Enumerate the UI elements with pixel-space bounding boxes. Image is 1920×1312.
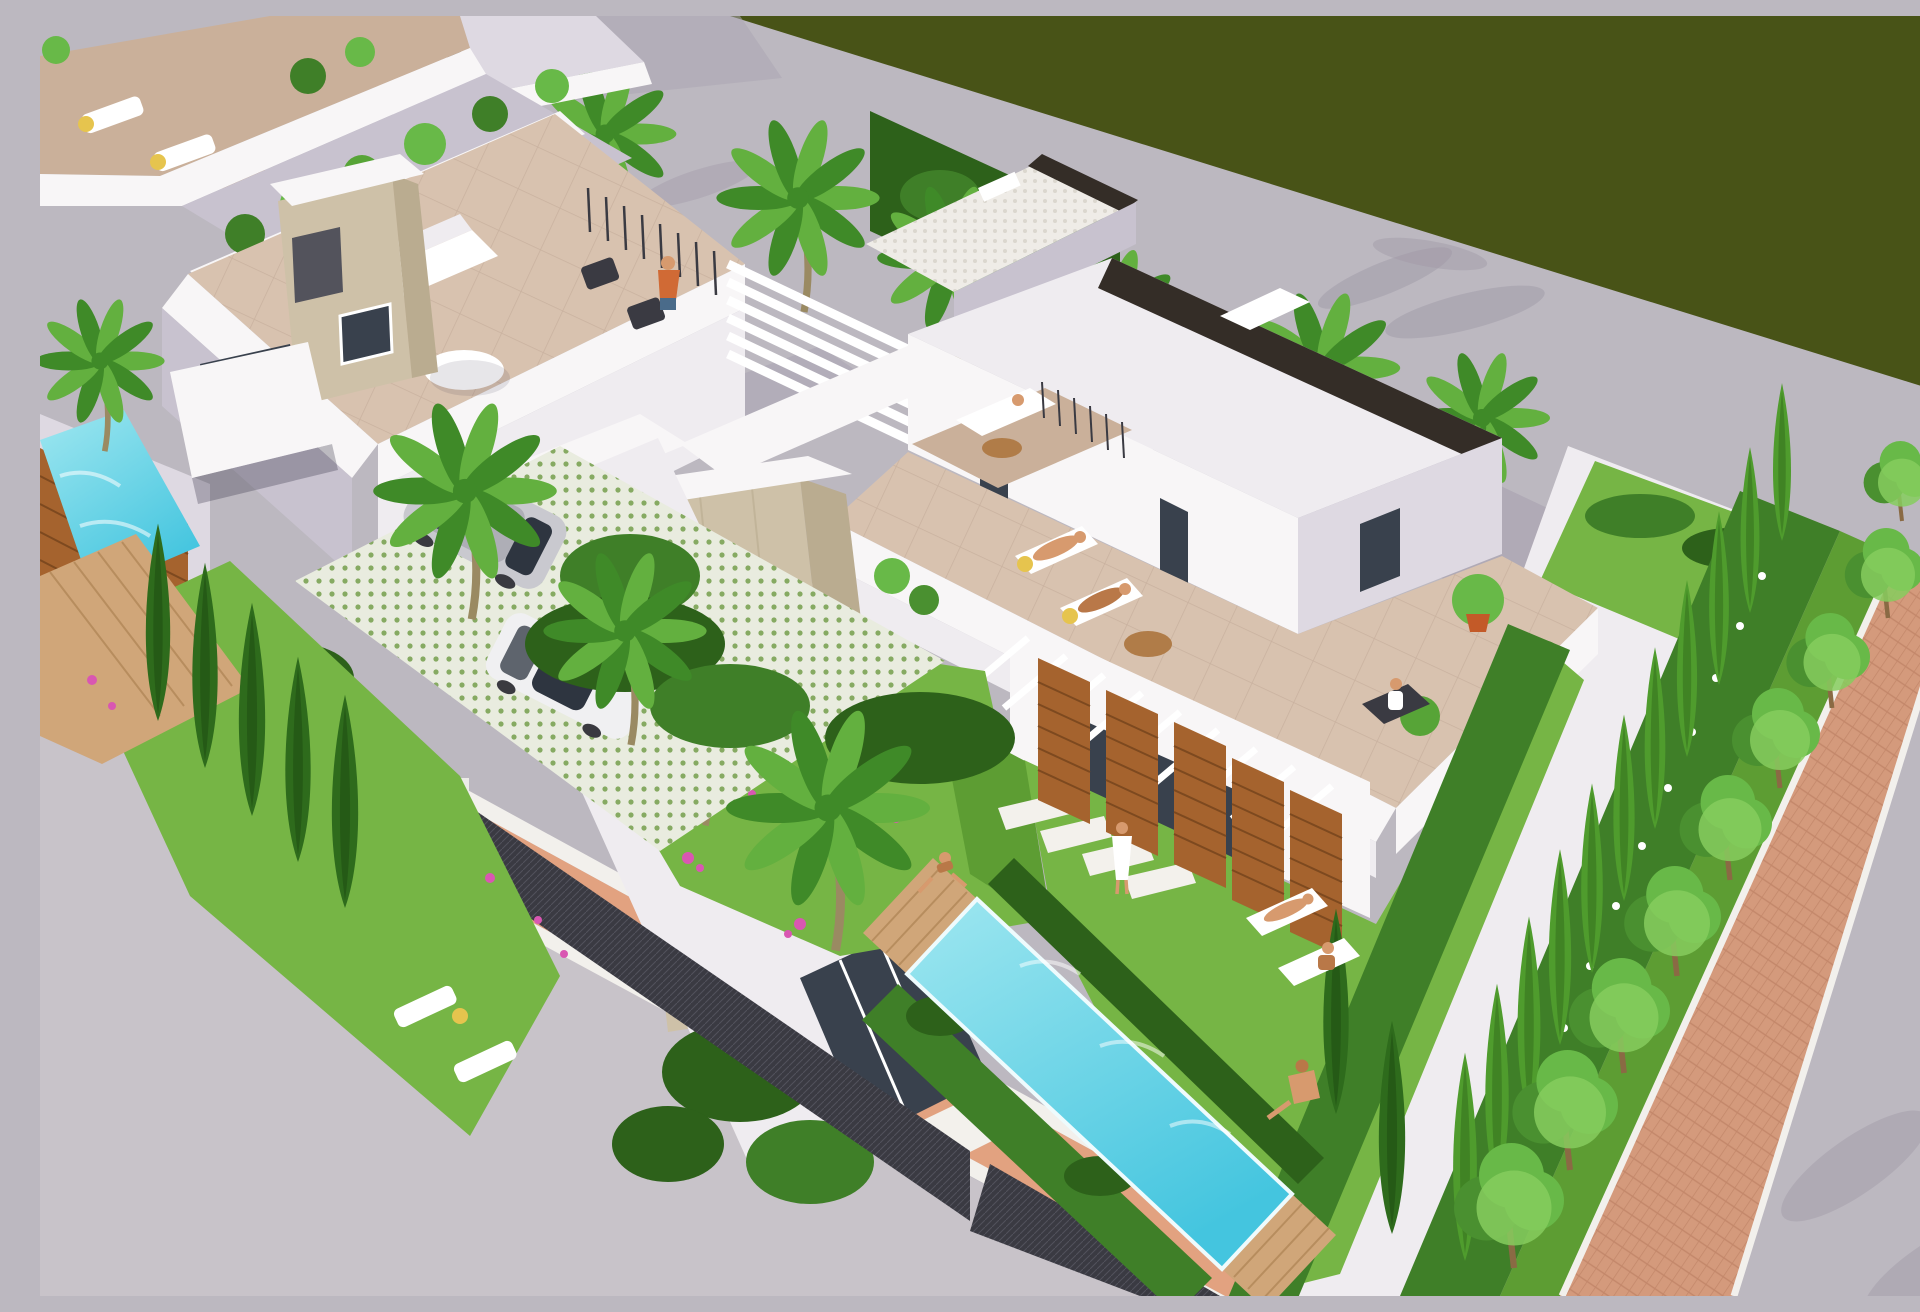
- sun-hat: [1062, 608, 1078, 624]
- chimney-window: [340, 304, 392, 364]
- back-hedge: [1585, 494, 1695, 538]
- sun-hat: [452, 1008, 468, 1024]
- villa-render: [40, 16, 1920, 1296]
- sun-hat: [78, 116, 94, 132]
- sun-hat: [150, 154, 166, 170]
- sun-hat: [1017, 556, 1033, 572]
- low-table: [982, 438, 1022, 458]
- vent-grate: [292, 227, 343, 303]
- wicker-table: [1124, 631, 1172, 657]
